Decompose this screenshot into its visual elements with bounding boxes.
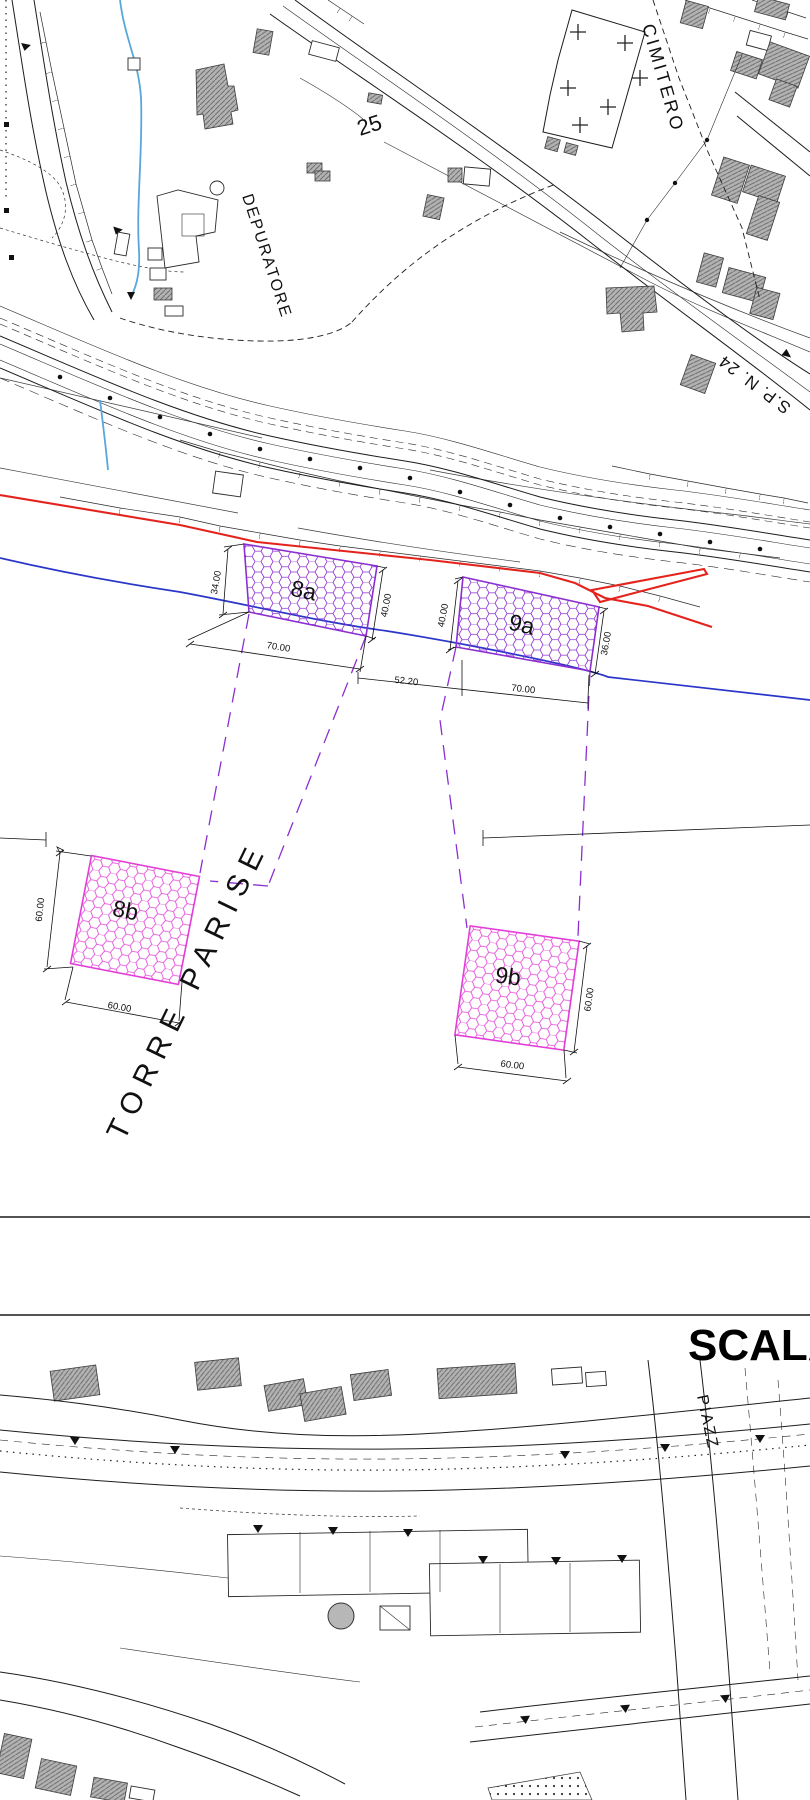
site-plan-drawing: 8a 9a 8b 9b 34.00 40.00 40.00: [0, 0, 810, 1800]
roundabout-icon: [328, 1603, 354, 1629]
site-plan-page: 8a 9a 8b 9b 34.00 40.00 40.00: [0, 0, 810, 1800]
zone-8b-label: 8b: [110, 895, 140, 925]
tank-icon: [210, 181, 224, 195]
scale-title: SCALA: [688, 1321, 810, 1370]
zone-9b-label: 9b: [494, 961, 523, 990]
